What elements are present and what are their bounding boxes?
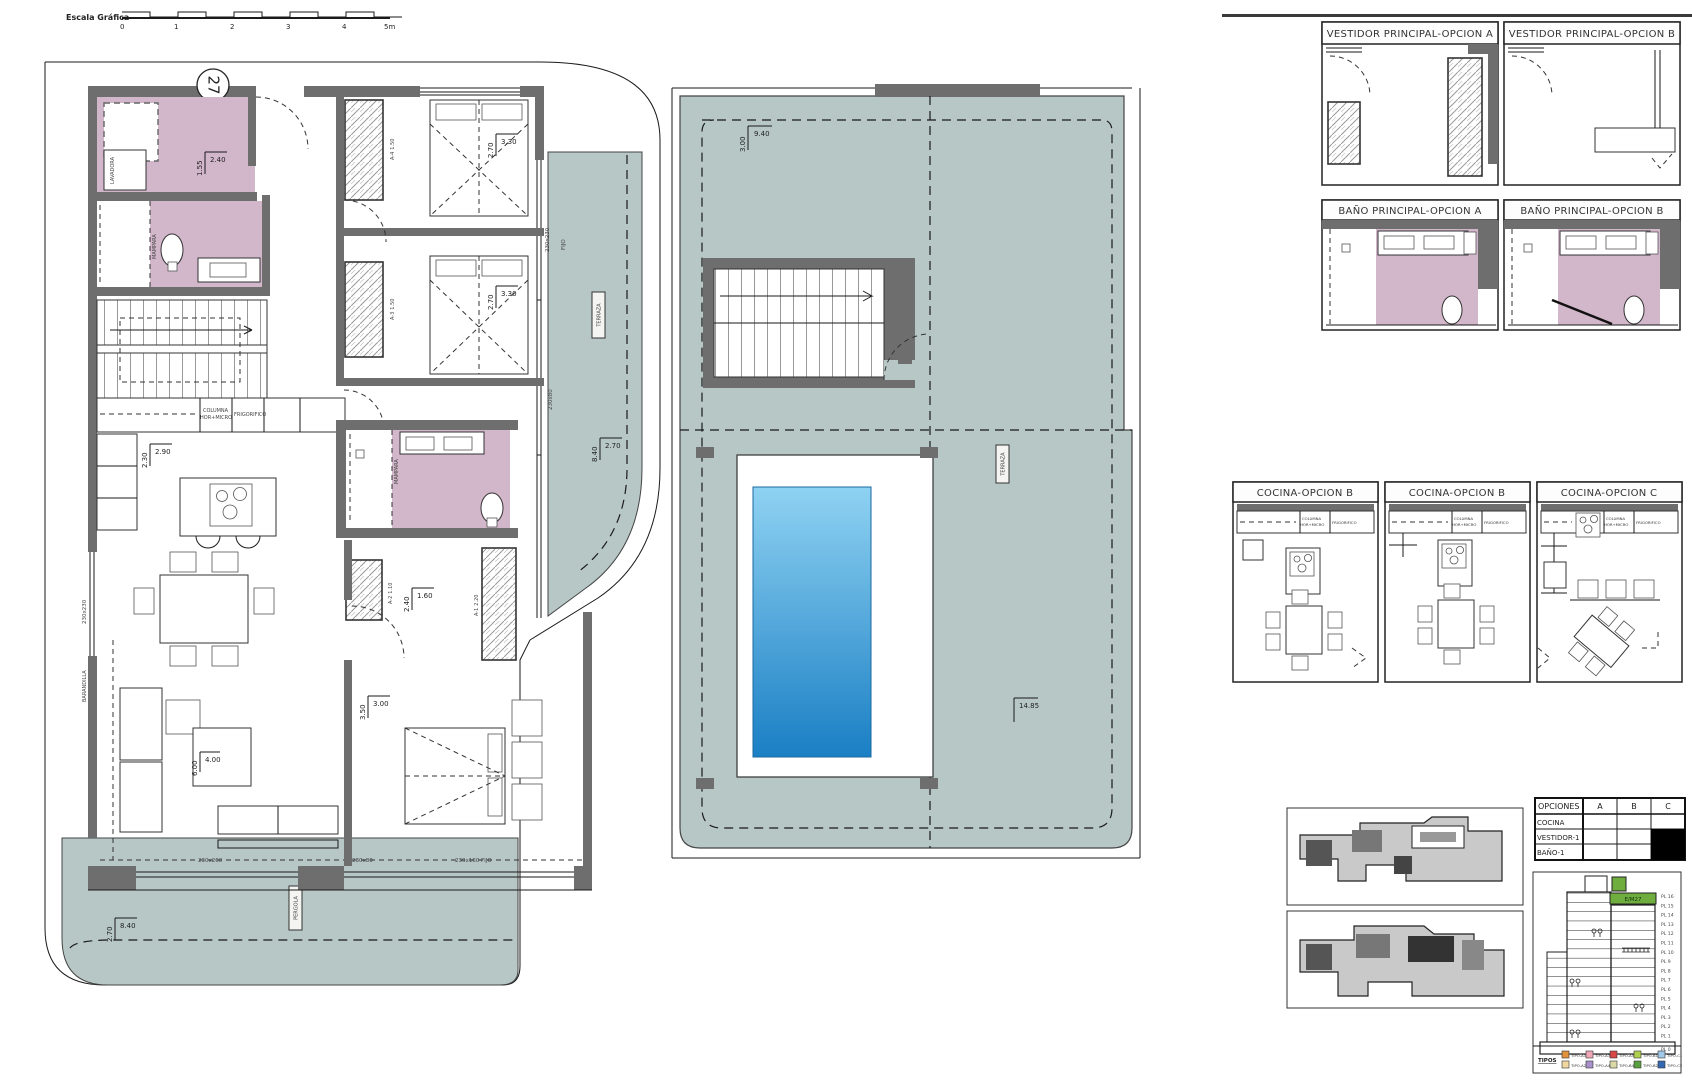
vestidor-a-wardrobe-left — [1328, 102, 1360, 164]
bed-3-pillow-a — [488, 734, 502, 772]
bath2-shower — [346, 430, 392, 528]
wall-bed2-left — [336, 236, 344, 384]
toilet-1-tank — [168, 262, 177, 271]
floor-label-7: PL 7 — [1661, 978, 1671, 984]
cocina3-bar — [1570, 580, 1660, 600]
options-header: OPCIONES — [1538, 802, 1579, 811]
floor-label-8: PL 8 — [1661, 968, 1671, 974]
options-col-b: B — [1631, 802, 1637, 811]
options-row-bano: BAÑO-1 — [1537, 848, 1565, 857]
panel-vestidor-a-title: VESTIDOR PRINCIPAL-OPCION A — [1327, 29, 1493, 40]
panel-bano-a-title: BAÑO PRINCIPAL-OPCION A — [1338, 204, 1481, 217]
closet-zone: A-21.10 1.60 2.40 A-12.20 — [346, 548, 516, 660]
panel-cocina-2: COCINA-OPCION B COLUMNA HOR+MICRO FRIGOR… — [1385, 482, 1530, 682]
hor-micro-label: HOR+MICRO — [200, 415, 232, 421]
panel-bano-a: BAÑO PRINCIPAL-OPCION A — [1322, 200, 1498, 330]
bed-1-pillow-b — [482, 104, 522, 120]
legend-label-a5: TIPO-A5 — [1618, 1053, 1635, 1058]
elevation-tower-left — [1567, 892, 1611, 1042]
vestidor-b-desk — [1595, 128, 1675, 152]
columna-label: COLUMNA — [203, 408, 229, 414]
options-cell-bano-c-filled — [1651, 844, 1685, 860]
legend-swatch-c1 — [1658, 1051, 1665, 1058]
window-label-s3: 230x160 FIJO — [455, 858, 492, 864]
roof-wall-top — [875, 84, 1040, 97]
floor-label-2: PL 2 — [1661, 1024, 1671, 1030]
cocina3-columna-label: COLUMNA — [1606, 516, 1625, 521]
options-col-c: C — [1665, 802, 1671, 811]
panel-cocina-3-title: COCINA-OPCION C — [1561, 488, 1658, 499]
bed-2-pillow-b — [482, 260, 522, 276]
tick-3: 3 — [286, 23, 290, 31]
stair-landing — [97, 345, 267, 353]
cocina3-hormicro-label: HOR+MICRO — [1604, 522, 1628, 527]
tick-2: 2 — [230, 23, 234, 31]
scale-bar-label: Escala Gráfica — [66, 13, 129, 22]
toilet-2-tank — [487, 518, 497, 527]
roof-plan: 9.40 3.00 TERRAZA 14.85 — [672, 84, 1140, 858]
floor-label-16: PL 16 — [1661, 894, 1674, 900]
floor-label-12: PL 12 — [1661, 931, 1674, 937]
wall-bath2-left — [336, 420, 346, 538]
pier-bottom-1 — [88, 866, 136, 890]
sofa-module-1 — [120, 688, 162, 760]
window-label-e1b: FIJO — [561, 239, 567, 250]
wardrobe-a1 — [482, 548, 516, 660]
tick-4: 4 — [342, 23, 347, 31]
wall-bed3-left-b — [344, 660, 352, 866]
floor-label-6: PL 6 — [1661, 987, 1671, 993]
wall-bath1-bottom — [97, 287, 270, 296]
dim-roof-right: 14.85 — [1019, 702, 1039, 710]
pool-water — [753, 487, 871, 757]
bathroom-2: MAMPARA — [336, 420, 518, 538]
legend-label-c1: TIPO-C1 — [1666, 1053, 1683, 1058]
options-row-cocina: COCINA — [1537, 819, 1565, 827]
wall-left — [88, 86, 97, 838]
legend-swatch-b2 — [1634, 1061, 1641, 1068]
elevation-tower-right — [1611, 905, 1655, 1042]
cocina2-frigo-label: FRIGORIFICO — [1484, 520, 1509, 525]
dim-bed2-w: 3.30 — [501, 290, 517, 298]
wall-bed1-left — [336, 86, 344, 232]
legend-swatch-b1 — [1634, 1051, 1641, 1058]
window-label-s1: 230x260 — [198, 858, 223, 864]
bath2-drain — [356, 450, 364, 458]
elevation-box: E/M27 PL 16 PL 15 PL 14 PL 13 PL 12 PL 1… — [1533, 872, 1683, 1073]
closet-a1-label: A-12.20 — [474, 595, 480, 616]
dim-terrace-s-h: 2.70 — [106, 926, 114, 942]
pier-bottom-2 — [298, 866, 344, 890]
wall-laundry-bottom — [97, 192, 257, 201]
dim-closet-h: 2.40 — [403, 596, 411, 612]
closet-a4-label: A-41.50 — [390, 139, 396, 160]
legend-label-b4: TIPO-B4 — [1618, 1063, 1635, 1068]
panel-cocina-1: COCINA-OPCION B COLUMNA HOR+MICRO FRIGOR… — [1233, 482, 1378, 682]
closet-a2-label: A-21.10 — [388, 583, 394, 604]
floor-label-11: PL 11 — [1661, 941, 1674, 947]
dim-closet-w: 1.60 — [417, 592, 433, 600]
panel-bano-b-title: BAÑO PRINCIPAL-OPCION B — [1520, 204, 1663, 217]
window-bed1-top — [420, 86, 520, 97]
legend-label-a2: TIPO-A2 — [1570, 1063, 1587, 1068]
dim-living-h: 6.00 — [191, 760, 199, 776]
dim-terrace-e-w: 2.70 — [605, 442, 621, 450]
dim-bed3-w: 3.00 — [373, 700, 389, 708]
cocina2-columna-label: COLUMNA — [1454, 516, 1473, 521]
panel-vestidor-b: VESTIDOR PRINCIPAL-OPCION B — [1504, 22, 1680, 185]
elevation-green-box — [1612, 877, 1626, 891]
roof-stairs — [703, 258, 930, 388]
roof-terraza-label: TERRAZA — [1001, 452, 1007, 477]
elevation-highlight-label: E/M27 — [1624, 897, 1642, 903]
bedroom-1: A-41.50 3.30 2.70 — [336, 86, 544, 236]
dim-kitchen-w: 2.90 — [155, 448, 171, 456]
key-plan-2 — [1287, 911, 1523, 1008]
drawing-sheet: Escala Gráfica 0 1 2 3 4 5m TERRAZA 2.70… — [0, 0, 1692, 1080]
dim-living-w: 4.00 — [205, 756, 221, 764]
wardrobe-a4 — [345, 100, 383, 200]
legend-swatch-a4 — [1586, 1061, 1593, 1068]
dim-bed1-w: 3.30 — [501, 138, 517, 146]
floor-label-15: PL 15 — [1661, 903, 1674, 909]
legend-title: TIPOS — [1538, 1058, 1557, 1064]
floor-label-3: PL 3 — [1661, 1015, 1671, 1021]
legend-label-a3: TIPO-A3 — [1594, 1053, 1611, 1058]
legend-label-a4: TIPO-A4 — [1594, 1063, 1611, 1068]
bedroom-2: A-31.50 3.30 2.70 — [336, 236, 544, 386]
cocina2-hormicro-label: HOR+MICRO — [1452, 522, 1476, 527]
bath2-sink-a — [406, 437, 434, 450]
options-table: OPCIONES A B C COCINA VESTIDOR-1 BAÑO-1 — [1535, 798, 1685, 860]
tick-0: 0 — [120, 23, 124, 31]
dining-table — [160, 575, 248, 643]
lavadora-label: LAVADORA — [110, 156, 116, 184]
options-cell-vestidor-c-filled — [1651, 829, 1685, 844]
cocina1-hormicro-label: HOR+MICRO — [1300, 522, 1324, 527]
legend-swatch-a2 — [1562, 1061, 1569, 1068]
elevation-roof-box — [1585, 876, 1607, 892]
dining-area — [134, 552, 274, 666]
bano-a-toilet — [1442, 296, 1462, 324]
bath1-shower — [97, 201, 150, 287]
wall-bed3-left-a — [344, 540, 352, 600]
legend-label-c2: TIPO-C2 — [1666, 1063, 1683, 1068]
dim-bed3-h: 3.50 — [359, 704, 367, 720]
stairs — [97, 300, 267, 398]
legend-swatch-a5 — [1610, 1051, 1617, 1058]
dim-bed1-h: 2.70 — [487, 142, 495, 158]
window-label-s2: 230x80 — [352, 858, 373, 864]
bed-2-pillow-a — [436, 260, 476, 276]
legend-label-a1: TIPO-A1 — [1570, 1053, 1587, 1058]
laundry-room: LAVADORA — [97, 86, 257, 201]
wall-bed1-bottom — [336, 228, 544, 236]
options-row-vestidor: VESTIDOR-1 — [1537, 834, 1579, 842]
dim-bath1-h: 1.55 — [196, 160, 204, 176]
wall-right-top — [535, 86, 544, 160]
panel-cocina-3: COCINA-OPCION C COLUMNA HOR+MICRO FRIGOR… — [1537, 482, 1682, 682]
dim-kitchen-h: 2.30 — [141, 452, 149, 468]
living-area: 4.00 6.00 — [120, 688, 338, 848]
wall-bath2-bottom — [336, 528, 518, 538]
scale-bar-zigzag — [122, 12, 402, 17]
wall-bath1-right — [262, 195, 270, 296]
dim-roof-w: 9.40 — [754, 130, 770, 138]
kitchen-counter-left — [97, 434, 137, 530]
dim-bed2-h: 2.70 — [487, 294, 495, 310]
wall-bed2-bottom — [336, 378, 544, 386]
panel-bano-b: BAÑO PRINCIPAL-OPCION B — [1504, 200, 1680, 330]
cocina1-columna-label: COLUMNA — [1302, 516, 1321, 521]
bath1-sink — [210, 263, 246, 277]
main-floor-plan: TERRAZA 2.70 8.40 230x230 FIJO 230x80 OR… — [45, 62, 660, 985]
bed-1-pillow-a — [436, 104, 476, 120]
plan-svg: Escala Gráfica 0 1 2 3 4 5m TERRAZA 2.70… — [0, 0, 1692, 1080]
floor-label-10: PL 10 — [1661, 950, 1674, 956]
vestidor-a-wardrobe-right — [1448, 58, 1482, 176]
wall-top-left — [88, 86, 256, 97]
kitchen: COLUMNA HOR+MICRO FRIGORIFICO 2.90 2.30 — [97, 398, 345, 548]
key-plan-1 — [1287, 808, 1523, 905]
tick-1: 1 — [174, 23, 178, 31]
floor-label-5: PL 5 — [1661, 996, 1671, 1002]
dim-bath1-w: 2.40 — [210, 156, 226, 164]
cocina3-frigo-label: FRIGORIFICO — [1636, 520, 1661, 525]
frigorifico-label: FRIGORIFICO — [234, 412, 266, 418]
panel-cocina-1-title: COCINA-OPCION B — [1257, 488, 1354, 499]
bath2-sink-b — [444, 437, 472, 450]
pergola-label: PERGOLA — [294, 896, 300, 920]
wall-bath2-top — [336, 420, 518, 430]
bathroom-1: MAMPARA — [97, 195, 270, 296]
closet-a3-label: A-31.50 — [390, 299, 396, 320]
dim-terrace-e-h: 8.40 — [591, 446, 599, 462]
window-label-e1: 230x230 — [545, 227, 551, 252]
legend-swatch-c2 — [1658, 1061, 1665, 1068]
bano-b-toilet — [1624, 296, 1644, 324]
unit-number: 27 — [205, 75, 223, 94]
legend-label-b2: TIPO-B2 — [1642, 1063, 1659, 1068]
dim-roof-h: 3.00 — [739, 136, 747, 152]
floor-label-1: PL 1 — [1661, 1034, 1671, 1040]
wardrobe-a3 — [345, 262, 383, 357]
elevation-wing-left — [1547, 952, 1567, 1042]
toilet-1 — [161, 234, 183, 266]
panel-vestidor-b-title: VESTIDOR PRINCIPAL-OPCION B — [1509, 29, 1675, 40]
window-label-e2: 230x80 — [548, 389, 554, 410]
panel-vestidor-a: VESTIDOR PRINCIPAL-OPCION A — [1322, 22, 1498, 185]
mampara2-label: MAMPARA — [394, 459, 400, 484]
window-label-w1: 230x230 — [82, 599, 88, 624]
tick-5: 5m — [384, 23, 395, 31]
sheet-border-line — [1222, 14, 1692, 17]
sofa-module-2 — [120, 762, 162, 832]
floor-label-9: PL 9 — [1661, 959, 1671, 965]
barandilla-label: BARANDILLA — [82, 670, 88, 702]
legend-swatch-a3 — [1586, 1051, 1593, 1058]
coffee-table — [193, 728, 251, 786]
terrace-east-label: TERRAZA — [592, 292, 605, 338]
terrace-east — [548, 152, 642, 616]
scale-bar-ticks: 0 1 2 3 4 5m — [120, 23, 395, 31]
options-col-a: A — [1597, 802, 1603, 811]
floor-label-13: PL 13 — [1661, 922, 1674, 928]
legend-swatch-a1 — [1562, 1051, 1569, 1058]
terraza-label: TERRAZA — [597, 303, 603, 328]
kitchen-island — [180, 478, 276, 548]
mampara1-label: MAMPARA — [152, 234, 158, 259]
legend-label-b1: TIPO-B1 — [1642, 1053, 1659, 1058]
cocina1-frigo-label: FRIGORIFICO — [1332, 520, 1357, 525]
floor-label-4: PL 4 — [1661, 1006, 1671, 1012]
wall-right-lower — [583, 612, 592, 872]
floor-label-14: PL 14 — [1661, 913, 1674, 919]
entry-door-arc — [256, 97, 308, 149]
scale-bar: Escala Gráfica 0 1 2 3 4 5m — [66, 12, 402, 31]
legend-swatch-b4 — [1610, 1061, 1617, 1068]
wall-laundry-right — [248, 86, 256, 166]
dim-terrace-s-w: 8.40 — [120, 922, 136, 930]
panel-cocina-2-title: COCINA-OPCION B — [1409, 488, 1506, 499]
pergola-label-group: PERGOLA — [289, 886, 302, 930]
